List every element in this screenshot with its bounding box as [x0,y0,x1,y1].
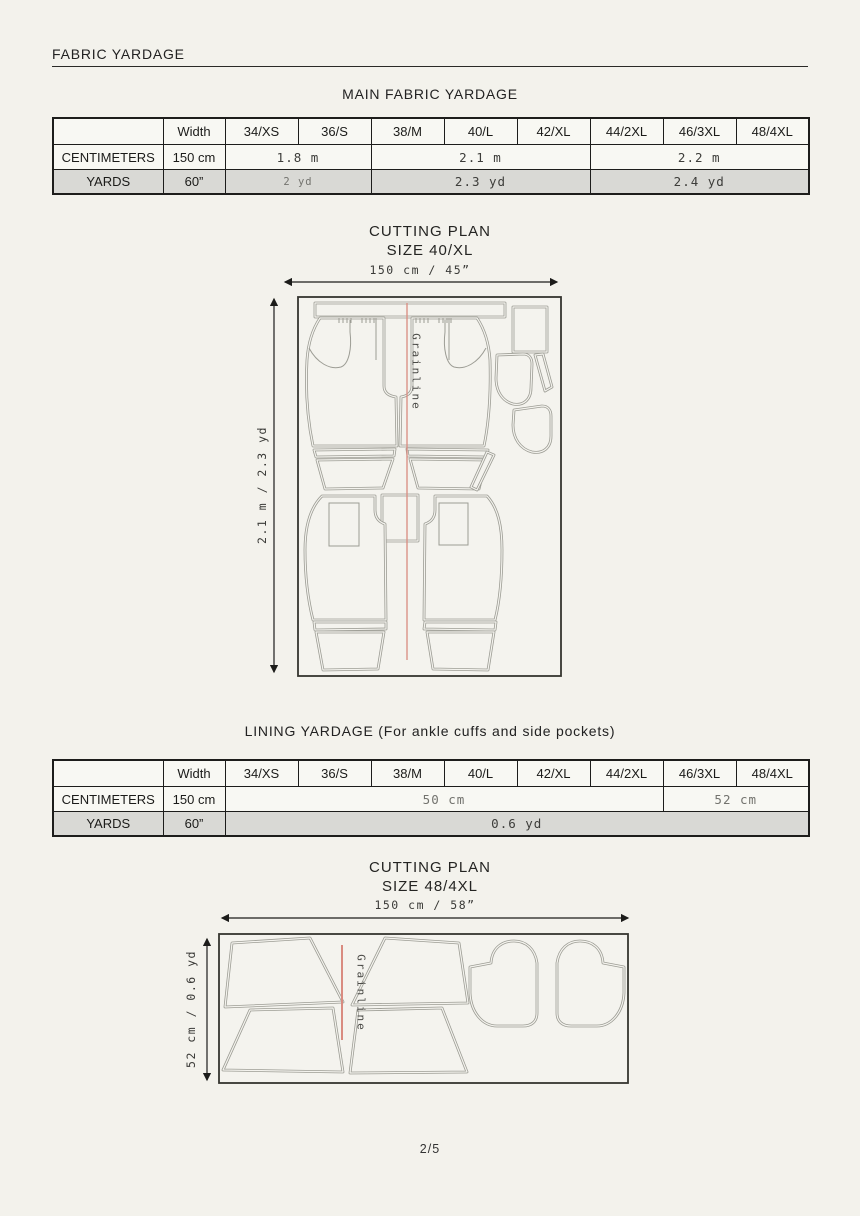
yardage-value: 2.4 yd [590,170,809,195]
size-col: 44/2XL [590,760,663,787]
cuff-section-piece [317,459,393,489]
fly-shield-piece [382,495,418,541]
pocket-facing-piece [513,307,547,352]
size-col: 46/3XL [663,760,736,787]
size-col: 36/S [298,760,371,787]
lining-yardage-table: Width 34/XS 36/S 38/M 40/L 42/XL 44/2XL … [52,759,810,837]
lining-yardage-title: LINING YARDAGE (For ankle cuffs and side… [0,723,860,739]
size-col: 48/4XL [736,760,809,787]
main-yardage-table: Width 34/XS 36/S 38/M 40/L 42/XL 44/2XL … [52,117,810,195]
yardage-value: 1.8 m [225,145,371,170]
yardage-value: 2.2 m [590,145,809,170]
grainline-label: Grainline [355,954,368,1032]
centimeters-row: CENTIMETERS 150 cm 50 cm 52 cm [53,787,809,812]
fabric-width: 60” [163,170,225,195]
corner-cell [53,118,163,145]
cutting-plan-title-line: CUTTING PLAN [0,222,860,241]
size-col: 36/S [298,118,371,145]
row-label: YARDS [53,170,163,195]
pattern-instruction-page: FABRIC YARDAGE MAIN FABRIC YARDAGE Width… [0,0,860,1216]
length-dimension-label: 2.1 m / 2.3 yd [255,426,269,544]
yardage-value: 0.6 yd [225,812,809,837]
width-dimension-label: 150 cm / 58” [374,898,475,912]
fabric-width: 150 cm [163,145,225,170]
size-col: 42/XL [517,118,590,145]
waistband-piece [315,303,505,317]
cutting-plan-main-title: CUTTING PLAN SIZE 40/XL [0,222,860,260]
row-label: YARDS [53,812,163,837]
yardage-value: 2 yd [225,170,371,195]
width-header: Width [163,760,225,787]
cutting-plan-lining-diagram: 150 cm / 58” 52 cm / 0.6 yd Grainline [180,895,660,1095]
yards-row: YARDS 60” 0.6 yd [53,812,809,837]
page-number: 2/5 [0,1142,860,1156]
back-leg-piece [305,496,386,620]
ankle-cuff-piece [316,632,384,670]
size-header-row: Width 34/XS 36/S 38/M 40/L 42/XL 44/2XL … [53,118,809,145]
fabric-width: 60” [163,812,225,837]
cutting-plan-size-line: SIZE 48/4XL [0,877,860,896]
cutting-plan-title-line: CUTTING PLAN [0,858,860,877]
size-col: 34/XS [225,118,298,145]
ankle-cuff-piece [427,632,494,670]
width-header: Width [163,118,225,145]
size-col: 34/XS [225,760,298,787]
size-col: 44/2XL [590,118,663,145]
header-rule [52,66,808,67]
size-col: 46/3XL [663,118,736,145]
size-col: 40/L [444,760,517,787]
back-leg-piece [424,496,502,620]
grainline-label: Grainline [410,333,423,411]
size-col: 38/M [371,760,444,787]
cutting-layout-drawing [255,260,585,690]
size-header-row: Width 34/XS 36/S 38/M 40/L 42/XL 44/2XL … [53,760,809,787]
cutting-plan-main-diagram: 150 cm / 45” 2.1 m / 2.3 yd Grainline [255,260,585,690]
centimeters-row: CENTIMETERS 150 cm 1.8 m 2.1 m 2.2 m [53,145,809,170]
size-col: 40/L [444,118,517,145]
pocket-bag-piece [513,406,551,452]
row-label: CENTIMETERS [53,145,163,170]
page-title: FABRIC YARDAGE [52,46,185,62]
yards-row: YARDS 60” 2 yd 2.3 yd 2.4 yd [53,170,809,195]
yardage-value: 2.3 yd [371,170,590,195]
size-col: 38/M [371,118,444,145]
size-col: 42/XL [517,760,590,787]
yardage-value: 50 cm [225,787,663,812]
cutting-plan-lining-title: CUTTING PLAN SIZE 48/4XL [0,858,860,896]
row-label: CENTIMETERS [53,787,163,812]
cutting-layout-drawing [180,895,660,1095]
length-dimension-label: 52 cm / 0.6 yd [184,950,198,1068]
fabric-width: 150 cm [163,787,225,812]
size-col: 48/4XL [736,118,809,145]
width-dimension-label: 150 cm / 45” [369,263,470,277]
main-yardage-title: MAIN FABRIC YARDAGE [0,86,860,102]
cutting-plan-size-line: SIZE 40/XL [0,241,860,260]
yardage-value: 52 cm [663,787,809,812]
yardage-value: 2.1 m [371,145,590,170]
corner-cell [53,760,163,787]
